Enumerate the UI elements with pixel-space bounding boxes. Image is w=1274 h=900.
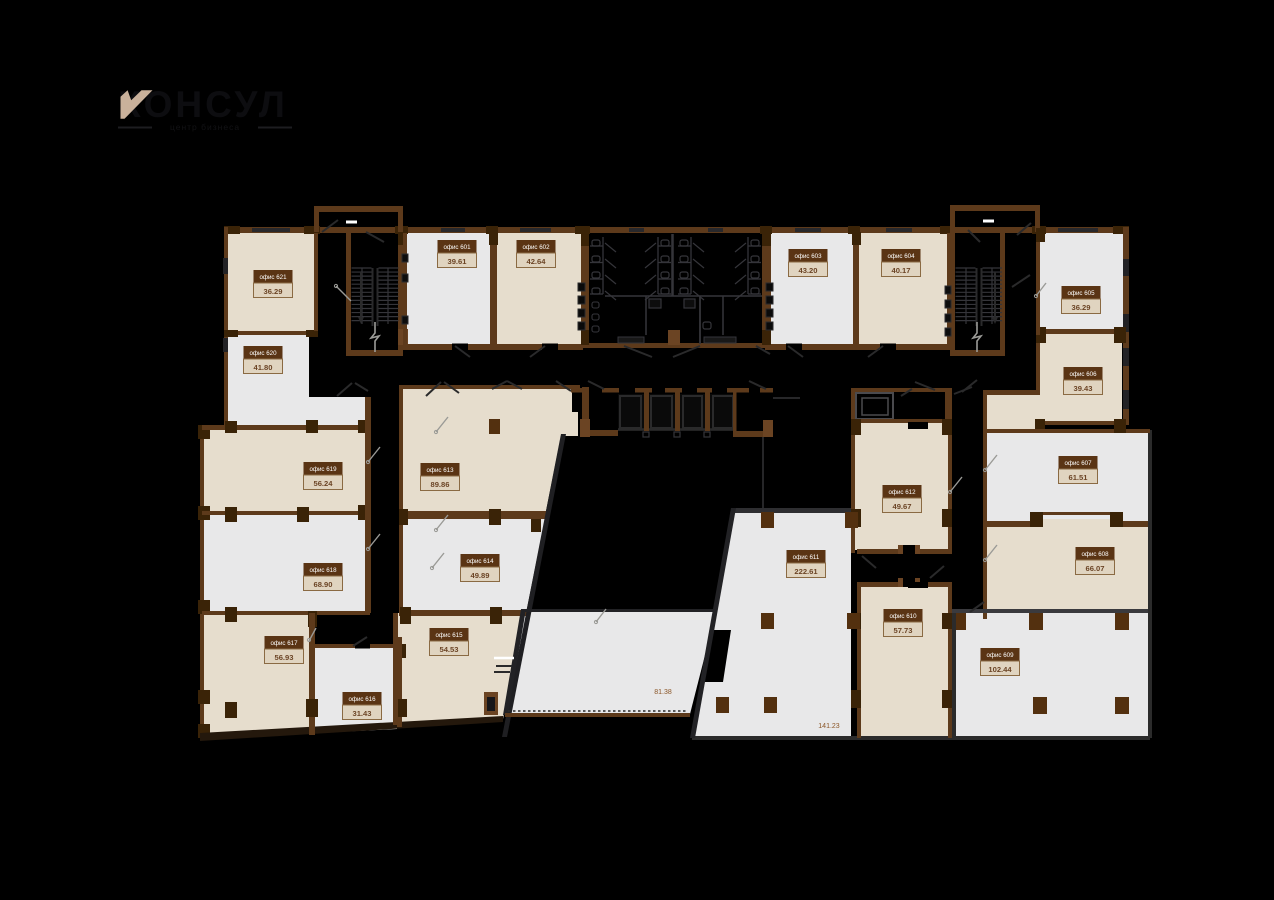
svg-text:36.29: 36.29 bbox=[263, 287, 282, 296]
svg-text:офис 617: офис 617 bbox=[270, 640, 298, 647]
svg-text:43.20: 43.20 bbox=[798, 266, 817, 275]
svg-text:офис 606: офис 606 bbox=[1069, 371, 1097, 378]
svg-text:офис 616: офис 616 bbox=[348, 696, 376, 703]
svg-text:офис 611: офис 611 bbox=[793, 554, 820, 561]
svg-text:31.43: 31.43 bbox=[352, 709, 371, 718]
svg-text:222.61: 222.61 bbox=[794, 567, 818, 576]
svg-text:39.43: 39.43 bbox=[1073, 384, 1092, 393]
svg-text:офис 620: офис 620 bbox=[249, 350, 277, 357]
svg-text:офис 610: офис 610 bbox=[889, 613, 917, 620]
svg-text:офис 615: офис 615 bbox=[435, 632, 463, 639]
svg-text:офис 612: офис 612 bbox=[888, 489, 916, 496]
svg-text:офис 621: офис 621 bbox=[259, 274, 287, 281]
svg-text:56.93: 56.93 bbox=[274, 653, 293, 662]
svg-text:офис 607: офис 607 bbox=[1064, 460, 1092, 467]
svg-text:89.86: 89.86 bbox=[430, 480, 449, 489]
svg-text:40.17: 40.17 bbox=[891, 266, 910, 275]
svg-text:центр бизнеса: центр бизнеса bbox=[170, 122, 240, 132]
svg-text:офис 609: офис 609 bbox=[986, 652, 1014, 659]
svg-text:49.67: 49.67 bbox=[892, 502, 911, 511]
svg-text:102.44: 102.44 bbox=[988, 665, 1012, 674]
svg-text:офис 604: офис 604 bbox=[887, 253, 915, 260]
svg-text:141.23: 141.23 bbox=[818, 723, 840, 730]
svg-text:офис 602: офис 602 bbox=[522, 244, 550, 251]
svg-text:39.61: 39.61 bbox=[447, 257, 467, 266]
svg-text:36.29: 36.29 bbox=[1071, 303, 1090, 312]
svg-text:61.51: 61.51 bbox=[1068, 473, 1088, 482]
svg-text:офис 619: офис 619 bbox=[309, 466, 337, 473]
svg-text:офис 613: офис 613 bbox=[426, 467, 454, 474]
svg-text:41.80: 41.80 bbox=[253, 363, 272, 372]
svg-text:66.07: 66.07 bbox=[1085, 564, 1104, 573]
svg-text:офис 618: офис 618 bbox=[309, 567, 337, 574]
svg-text:54.53: 54.53 bbox=[439, 645, 458, 654]
svg-text:42.64: 42.64 bbox=[526, 257, 546, 266]
svg-text:КОНСУЛ: КОНСУЛ bbox=[118, 84, 288, 125]
svg-text:81.38: 81.38 bbox=[654, 689, 672, 696]
svg-text:56.24: 56.24 bbox=[313, 479, 333, 488]
svg-text:офис 603: офис 603 bbox=[794, 253, 822, 260]
svg-text:49.89: 49.89 bbox=[470, 571, 489, 580]
svg-text:68.90: 68.90 bbox=[313, 580, 332, 589]
svg-text:офис 608: офис 608 bbox=[1081, 551, 1109, 558]
svg-text:офис 605: офис 605 bbox=[1067, 290, 1095, 297]
svg-text:офис 601: офис 601 bbox=[443, 244, 471, 251]
svg-text:57.73: 57.73 bbox=[893, 626, 912, 635]
svg-text:офис 614: офис 614 bbox=[466, 558, 494, 565]
